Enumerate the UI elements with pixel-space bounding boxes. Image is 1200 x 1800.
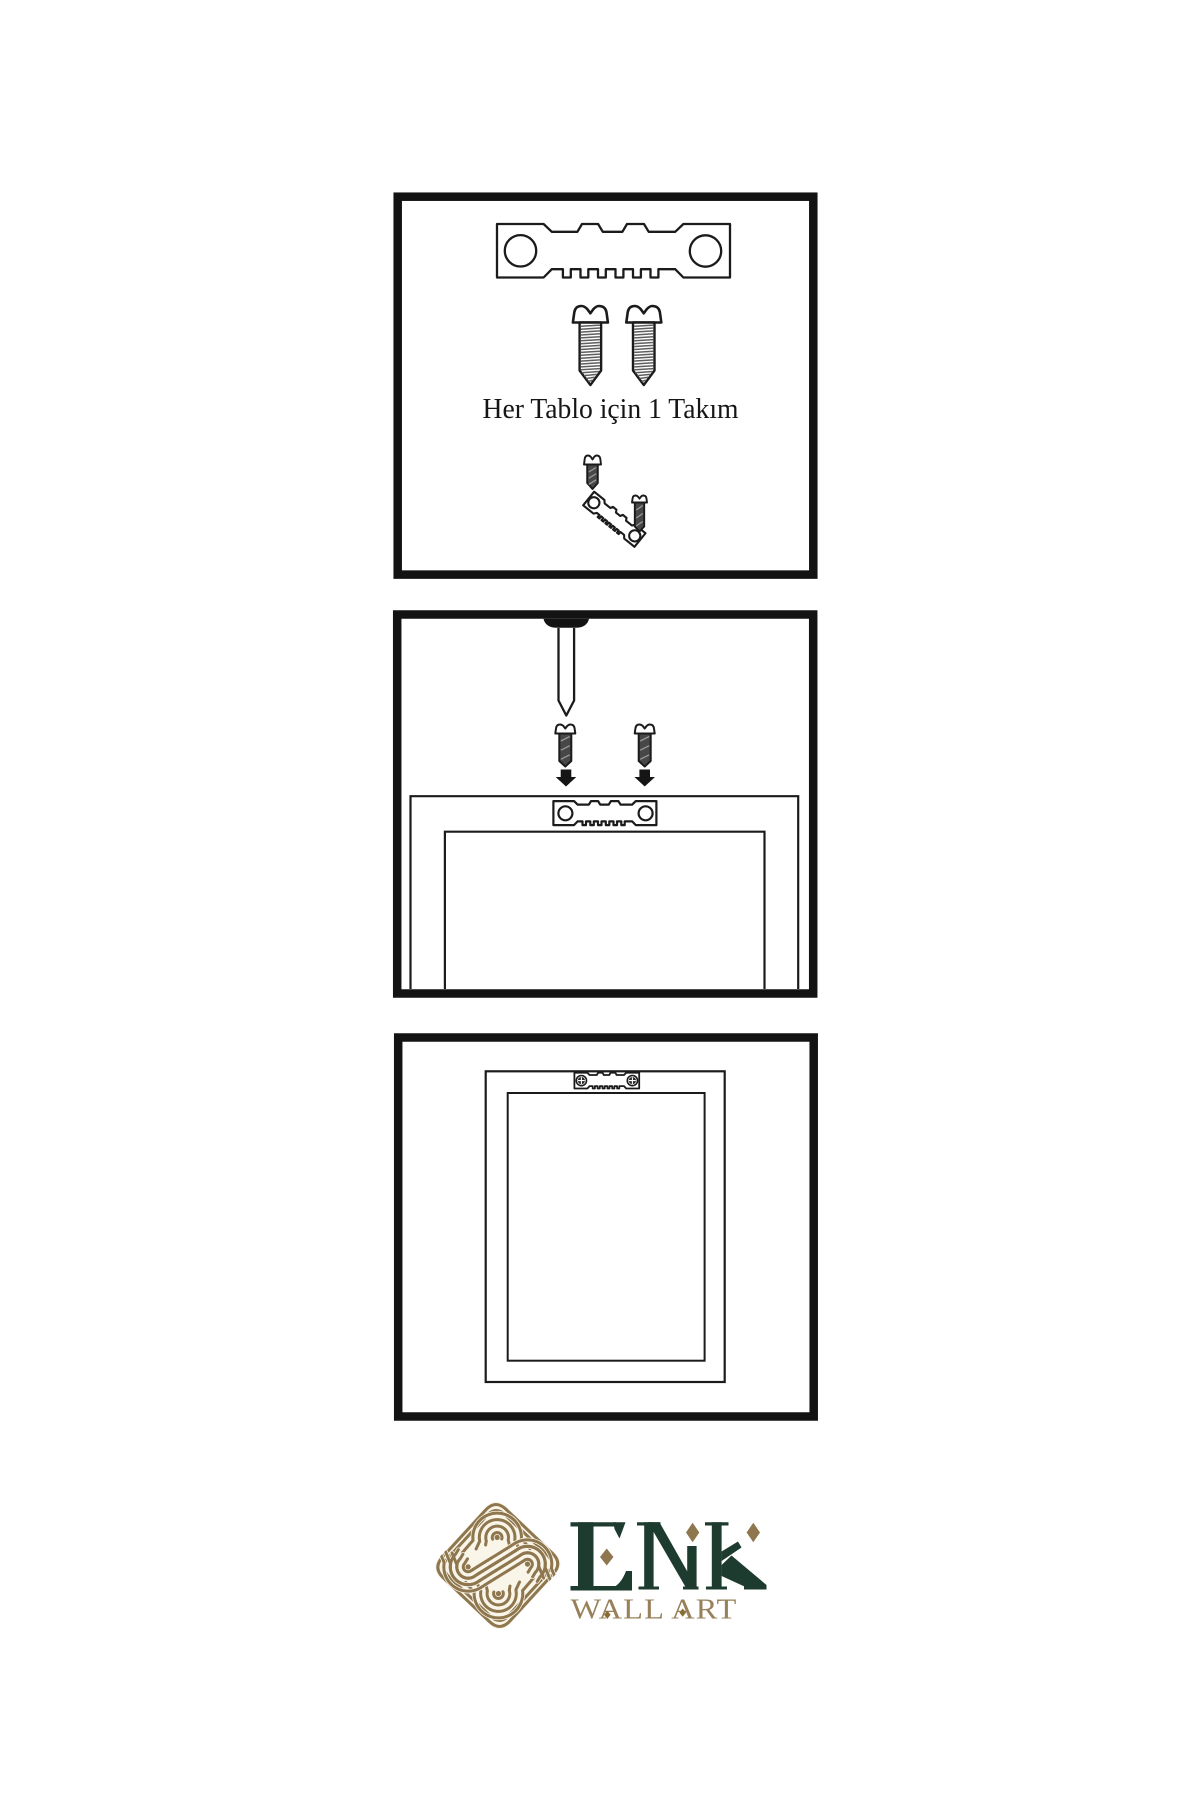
svg-text:WALL ART: WALL ART [571, 1594, 738, 1626]
svg-text:Her Tablo için 1 Takım: Her Tablo için 1 Takım [483, 393, 739, 425]
